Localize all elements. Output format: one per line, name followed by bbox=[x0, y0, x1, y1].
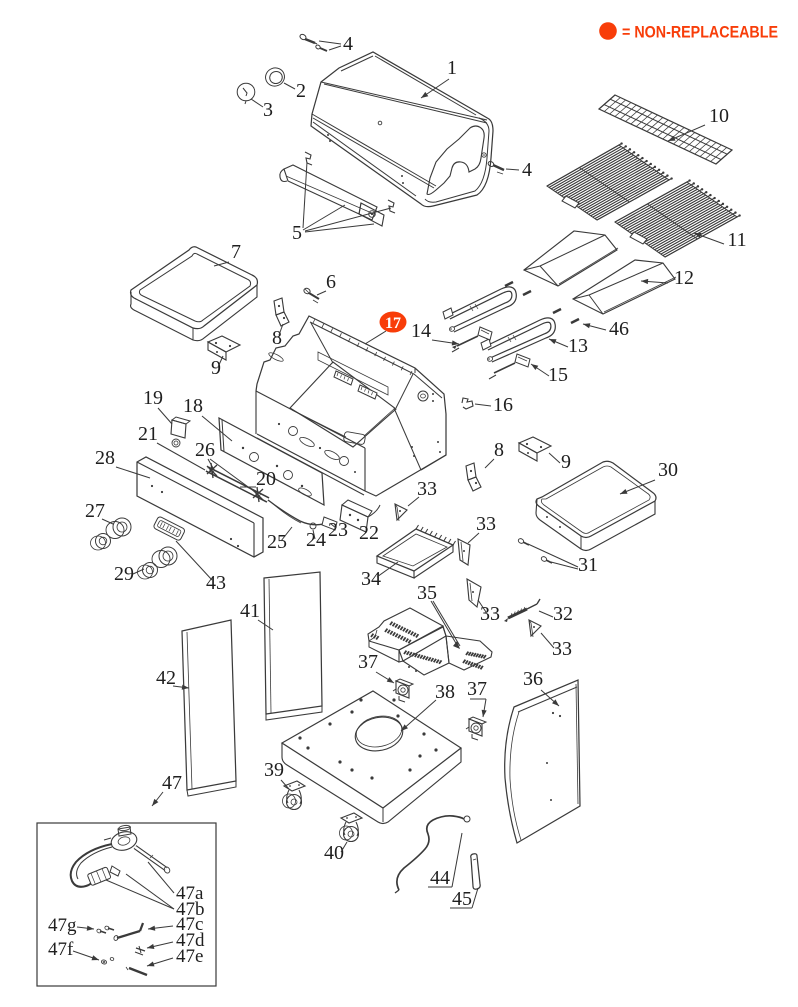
svg-text:4: 4 bbox=[522, 159, 532, 181]
svg-text:3: 3 bbox=[263, 99, 273, 121]
svg-text:37: 37 bbox=[467, 678, 487, 700]
svg-text:16: 16 bbox=[493, 394, 513, 416]
svg-text:30: 30 bbox=[658, 459, 678, 481]
svg-text:7: 7 bbox=[231, 241, 241, 263]
svg-text:1: 1 bbox=[447, 57, 457, 79]
svg-text:47e: 47e bbox=[176, 946, 203, 967]
svg-text:6: 6 bbox=[326, 271, 336, 293]
svg-text:14: 14 bbox=[411, 320, 431, 342]
svg-text:26: 26 bbox=[195, 439, 215, 461]
svg-text:= NON-REPLACEABLE: = NON-REPLACEABLE bbox=[622, 24, 778, 42]
svg-text:9: 9 bbox=[561, 451, 571, 473]
svg-text:10: 10 bbox=[709, 105, 729, 127]
svg-text:13: 13 bbox=[568, 335, 588, 357]
svg-text:20: 20 bbox=[256, 468, 276, 490]
svg-text:35: 35 bbox=[417, 582, 437, 604]
svg-text:31: 31 bbox=[578, 554, 598, 576]
svg-text:18: 18 bbox=[183, 395, 203, 417]
svg-text:12: 12 bbox=[674, 267, 694, 289]
svg-text:42: 42 bbox=[156, 667, 176, 689]
svg-text:9: 9 bbox=[211, 357, 221, 379]
svg-text:41: 41 bbox=[240, 600, 260, 622]
svg-text:25: 25 bbox=[267, 531, 287, 553]
svg-text:34: 34 bbox=[361, 568, 381, 590]
svg-text:21: 21 bbox=[138, 423, 158, 445]
svg-text:4: 4 bbox=[343, 33, 353, 55]
svg-text:43: 43 bbox=[206, 572, 226, 594]
svg-text:33: 33 bbox=[552, 638, 572, 660]
svg-text:45: 45 bbox=[452, 888, 472, 910]
svg-text:46: 46 bbox=[609, 318, 629, 340]
svg-text:47f: 47f bbox=[48, 939, 74, 960]
svg-text:36: 36 bbox=[523, 668, 543, 690]
svg-text:24: 24 bbox=[306, 529, 326, 551]
svg-text:33: 33 bbox=[480, 603, 500, 625]
svg-text:22: 22 bbox=[359, 522, 379, 544]
svg-text:44: 44 bbox=[430, 867, 450, 889]
svg-text:32: 32 bbox=[553, 603, 573, 625]
svg-text:11: 11 bbox=[727, 229, 746, 251]
svg-text:27: 27 bbox=[85, 500, 105, 522]
svg-text:47g: 47g bbox=[48, 915, 77, 936]
svg-text:37: 37 bbox=[358, 651, 378, 673]
svg-text:39: 39 bbox=[264, 759, 284, 781]
svg-text:47: 47 bbox=[162, 772, 182, 794]
svg-text:40: 40 bbox=[324, 842, 344, 864]
svg-text:8: 8 bbox=[494, 439, 504, 461]
svg-text:29: 29 bbox=[114, 563, 134, 585]
svg-text:33: 33 bbox=[476, 513, 496, 535]
svg-text:28: 28 bbox=[95, 447, 115, 469]
svg-text:33: 33 bbox=[417, 478, 437, 500]
svg-text:17: 17 bbox=[385, 315, 401, 332]
svg-text:15: 15 bbox=[548, 364, 568, 386]
svg-text:19: 19 bbox=[143, 387, 163, 409]
svg-text:2: 2 bbox=[296, 80, 306, 102]
svg-text:38: 38 bbox=[435, 681, 455, 703]
svg-text:5: 5 bbox=[292, 222, 302, 244]
